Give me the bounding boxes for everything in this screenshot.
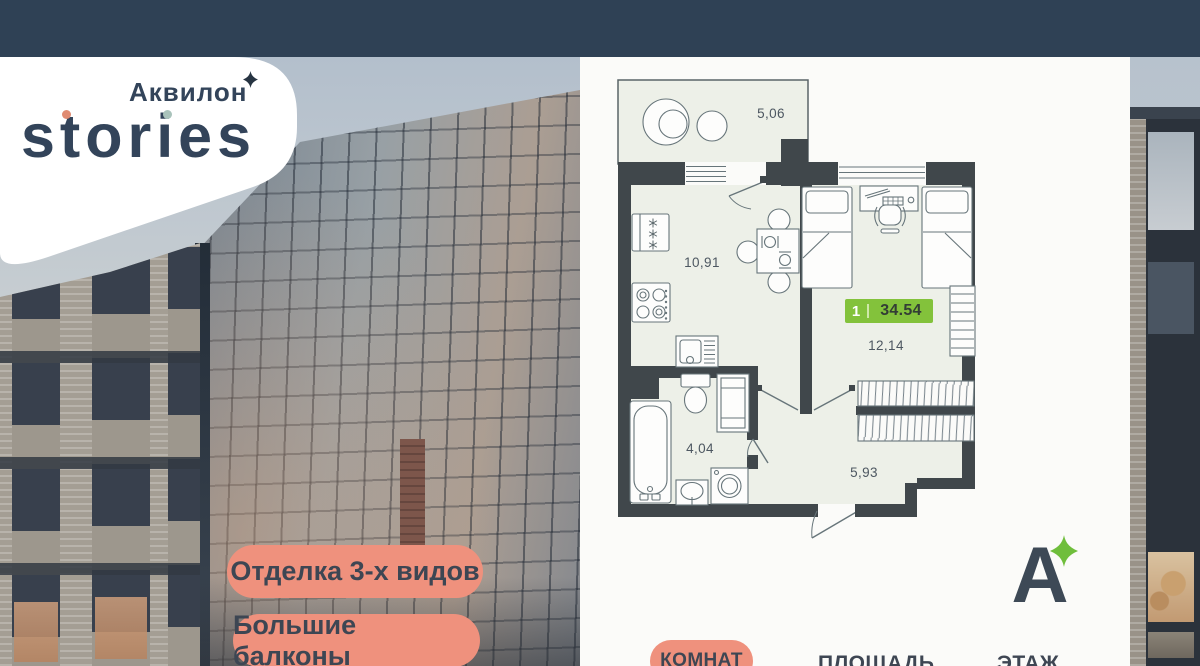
total-area-value: 34.54 [869, 302, 933, 320]
rooms-count: 1 [845, 303, 867, 320]
balcony-area: 5,06 [757, 106, 785, 121]
balcony [618, 80, 808, 164]
top-bar [0, 0, 1200, 57]
window [1148, 632, 1194, 658]
footer-area-label: ПЛОЩАДЬ [818, 652, 934, 666]
promo-badge-finish: Отделка 3-х видов [227, 545, 483, 598]
footer-rooms-pill: КОМНАТ [650, 640, 753, 666]
room-area: 12,14 [868, 338, 904, 353]
lit-window [95, 597, 147, 659]
footer-floor-label: ЭТАЖ [997, 652, 1059, 666]
stool [768, 209, 790, 231]
developer-logo-star-icon [1050, 534, 1078, 568]
bathroom-area: 4,04 [686, 441, 714, 456]
balcony-table [697, 111, 727, 141]
office-chair [879, 205, 901, 225]
dining-table [757, 229, 799, 273]
lit-window [1148, 552, 1194, 622]
window [1148, 132, 1194, 232]
hallway-area: 5,93 [850, 465, 878, 480]
kitchen-area: 10,91 [684, 255, 720, 270]
total-area-badge: 1 34.54 [845, 299, 933, 323]
stove [632, 283, 670, 322]
logo-dot-green [163, 110, 172, 119]
stool [768, 271, 790, 293]
toilet [681, 374, 710, 387]
brand-logo: Аквилон stories [0, 57, 300, 269]
apartment-floor [631, 162, 962, 504]
logo-dot-orange [62, 110, 71, 119]
lit-window [14, 602, 58, 662]
window [1148, 262, 1194, 334]
roof-slab [1130, 107, 1200, 119]
washing-machine [711, 468, 748, 504]
bath-cabinet [717, 374, 749, 432]
brand-name-bottom: stories [21, 101, 256, 171]
sparkle-icon [243, 71, 258, 88]
promo-badge-balconies: Большие балконы [233, 614, 480, 666]
stool [737, 241, 759, 263]
wardrobe-hall [858, 415, 974, 441]
wardrobe-room [858, 381, 974, 406]
building-photo-right [1130, 57, 1200, 666]
listing-card: Аквилон stories Отделка 3-х видов Больши… [0, 0, 1200, 666]
